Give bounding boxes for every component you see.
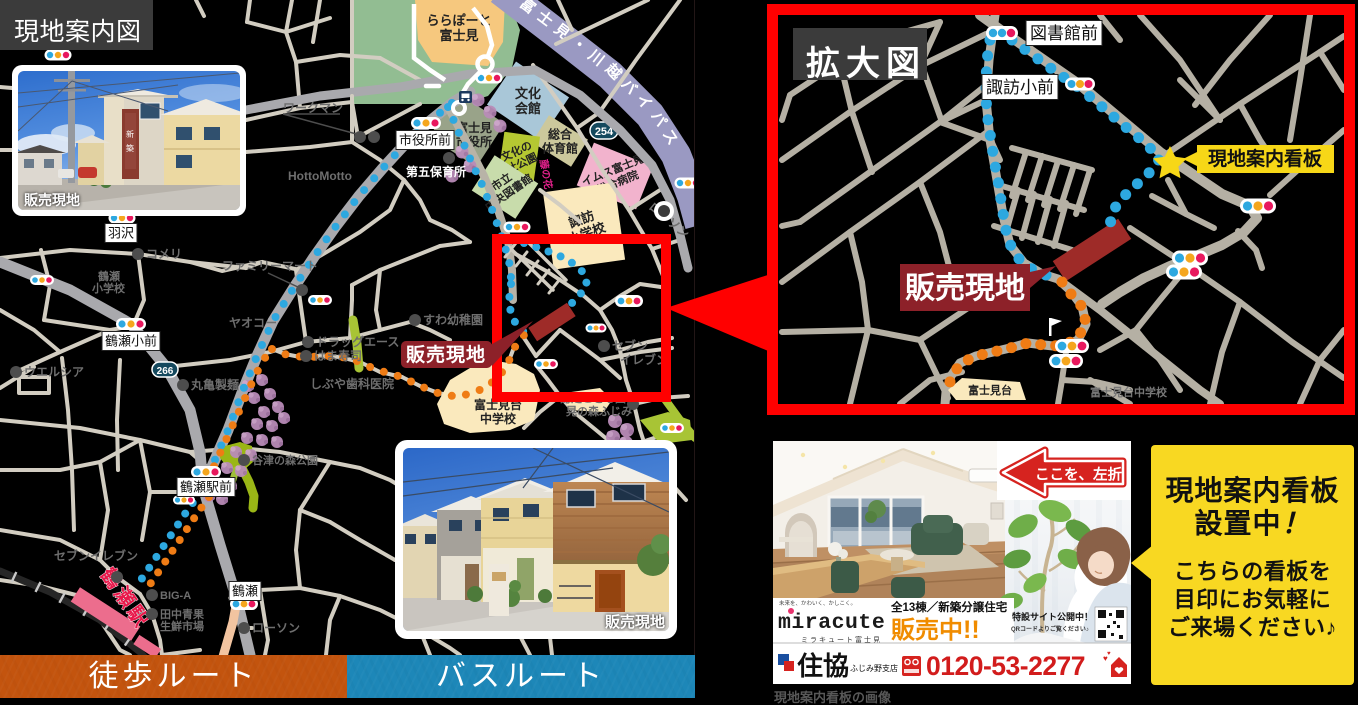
svg-text:羽沢: 羽沢 [108, 226, 134, 241]
svg-text:ヤオコー: ヤオコー [229, 316, 277, 330]
svg-text:鶴瀬: 鶴瀬 [232, 584, 258, 599]
svg-text:中学校: 中学校 [480, 411, 517, 426]
svg-text:生鮮市場: 生鮮市場 [160, 619, 204, 633]
svg-text:ウエルシア: ウエルシア [24, 365, 84, 379]
svg-text:諏訪小前: 諏訪小前 [986, 78, 1054, 97]
svg-text:鶴瀬小前: 鶴瀬小前 [105, 334, 157, 349]
svg-text:セブン: セブン [612, 338, 648, 353]
svg-text:体育館: 体育館 [542, 140, 578, 155]
svg-text:miracute: miracute [778, 611, 885, 635]
svg-text:はま寿司: はま寿司 [314, 348, 362, 363]
svg-text:販売中!!: 販売中!! [891, 616, 980, 644]
svg-text:田中青果: 田中青果 [160, 607, 204, 621]
svg-text:ワークマン: ワークマン [283, 101, 343, 115]
svg-text:鶴瀬: 鶴瀬 [98, 269, 120, 283]
svg-text:鶴瀬駅前: 鶴瀬駅前 [180, 480, 232, 495]
svg-text:全13棟／新築分譲住宅: 全13棟／新築分譲住宅 [890, 600, 1008, 614]
svg-text:ファミリーマート: ファミリーマート [222, 259, 318, 273]
svg-text:丸亀製麺: 丸亀製麺 [190, 377, 239, 392]
svg-text:第五保育所: 第五保育所 [406, 164, 466, 179]
svg-text:ローソン: ローソン [252, 621, 300, 635]
svg-text:特設サイト公開中！: 特設サイト公開中！ [1012, 611, 1093, 622]
svg-text:コメリ: コメリ [146, 247, 182, 261]
svg-text:0120-53-2277: 0120-53-2277 [926, 651, 1085, 681]
svg-text:市役所前: 市役所前 [399, 133, 451, 148]
svg-text:富士見: 富士見 [439, 28, 478, 43]
svg-text:セブンイレブン: セブンイレブン [54, 548, 138, 563]
svg-text:図書館前: 図書館前 [1030, 24, 1098, 43]
svg-text:すわ幼稚園: すわ幼稚園 [423, 312, 483, 327]
svg-text:♥: ♥ [1107, 651, 1111, 657]
svg-text:文化: 文化 [515, 86, 541, 101]
svg-text:266: 266 [157, 366, 174, 377]
svg-text:販売現地: 販売現地 [905, 272, 1025, 305]
svg-text:ふじみ野支店: ふじみ野支店 [850, 663, 898, 673]
svg-text:富士見台: 富士見台 [968, 383, 1012, 397]
svg-text:販売現地: 販売現地 [406, 343, 486, 366]
svg-text:HottoMotto: HottoMotto [288, 169, 352, 183]
svg-text:晃の森ふじみ: 晃の森ふじみ [565, 404, 632, 418]
svg-text:築: 築 [126, 143, 134, 153]
svg-text:住協: 住協 [797, 651, 849, 681]
svg-text:BIG-A: BIG-A [160, 590, 191, 602]
svg-text:富士見台中学校: 富士見台中学校 [1090, 385, 1168, 399]
svg-text:ドラッグエース: ドラッグエース [316, 334, 399, 349]
svg-text:総合: 総合 [548, 126, 573, 141]
svg-text:新: 新 [126, 129, 134, 139]
svg-text:しぶや歯科医院: しぶや歯科医院 [310, 376, 394, 391]
svg-text:現地案内看板: 現地案内看板 [1208, 147, 1323, 170]
svg-text:小学校: 小学校 [91, 281, 126, 295]
svg-text:QRコードよりご覧ください♪: QRコードよりご覧ください♪ [1011, 625, 1089, 633]
svg-text:谷津の森公園: 谷津の森公園 [252, 453, 318, 467]
svg-text:会館: 会館 [515, 101, 541, 116]
svg-text:未来を、かわいく、かしこく。: 未来を、かわいく、かしこく。 [779, 599, 856, 607]
svg-text:ここを、左折: ここを、左折 [1035, 466, 1122, 484]
